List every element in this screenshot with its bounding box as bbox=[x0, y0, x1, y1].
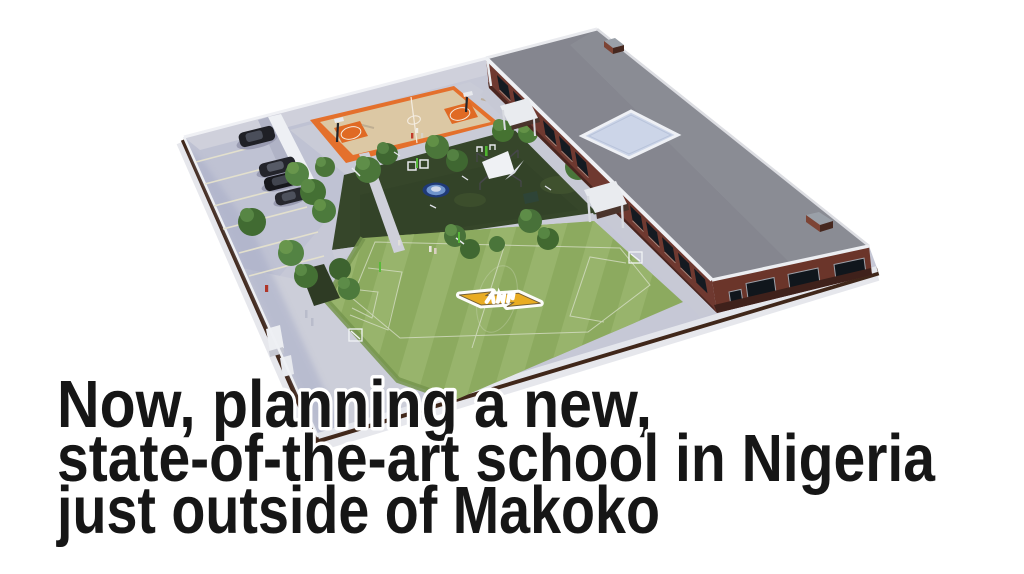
svg-text:just outside of Makoko: just outside of Makoko bbox=[55, 473, 660, 548]
